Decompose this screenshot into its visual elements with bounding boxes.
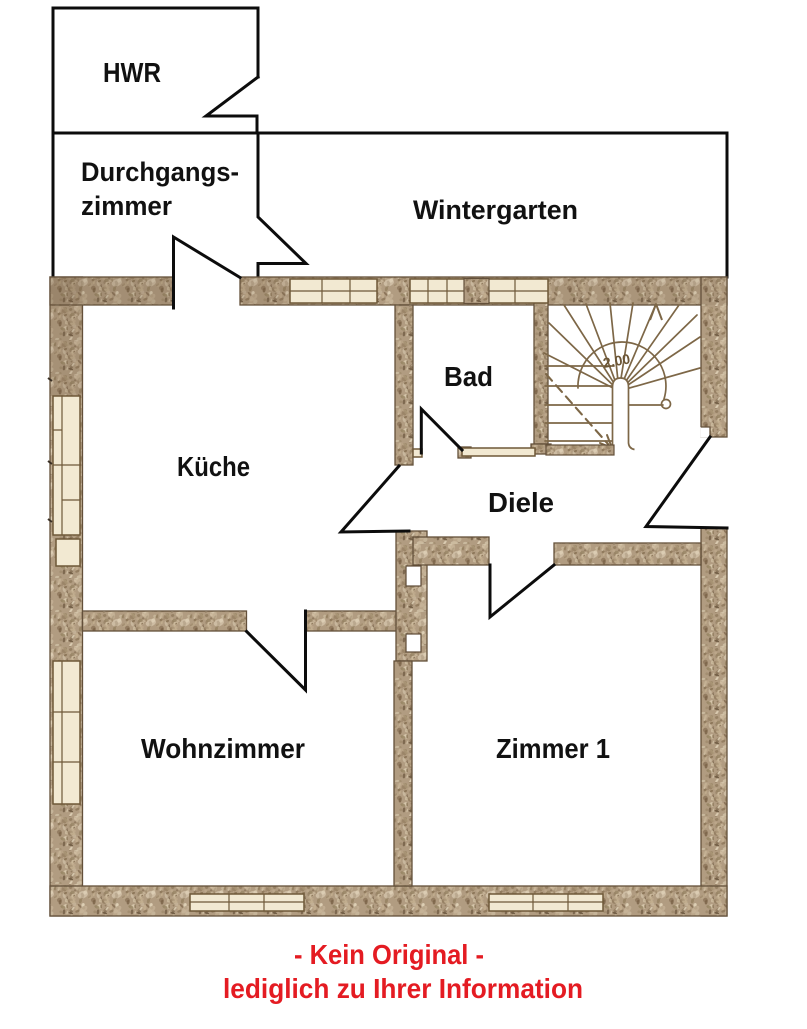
svg-text:HWR: HWR (103, 57, 161, 88)
svg-text:Küche: Küche (177, 451, 250, 482)
svg-text:lediglich zu Ihrer Information: lediglich zu Ihrer Information (223, 973, 583, 1004)
svg-text:- Kein Original -: - Kein Original - (294, 939, 484, 970)
svg-text:zimmer: zimmer (81, 191, 172, 221)
svg-text:Durchgangs-: Durchgangs- (81, 157, 239, 187)
svg-text:Wohnzimmer: Wohnzimmer (141, 733, 305, 764)
svg-text:Diele: Diele (488, 487, 554, 518)
svg-text:Wintergarten: Wintergarten (413, 195, 578, 225)
svg-text:Bad: Bad (444, 361, 493, 392)
svg-text:Zimmer 1: Zimmer 1 (496, 733, 610, 764)
